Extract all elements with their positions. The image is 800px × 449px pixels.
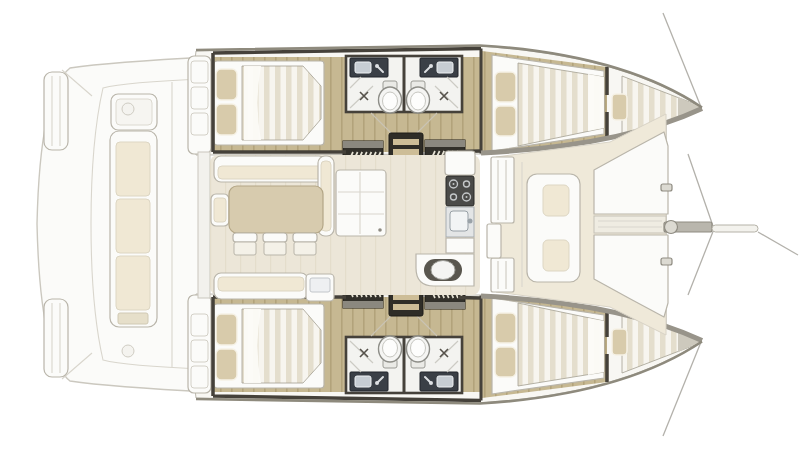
round-sink (431, 261, 455, 280)
anchor-line (758, 232, 798, 255)
stool-back (293, 233, 317, 242)
stove (446, 176, 474, 206)
foredeck-walkway (594, 216, 666, 233)
stool-back (263, 233, 287, 242)
sofa-cushion (218, 166, 322, 179)
bow-hardware (661, 184, 758, 265)
aft-bench-cushion (218, 277, 304, 291)
aft-cabin (214, 61, 324, 145)
beam-fitting (665, 221, 678, 234)
bench-cushion (116, 256, 150, 310)
stool (264, 242, 286, 255)
pillow (216, 69, 237, 100)
pillow (216, 104, 237, 135)
beam-cleat (661, 184, 672, 191)
floor-plan-canvas (0, 0, 800, 449)
pillow (495, 72, 516, 102)
transom-steps (44, 299, 68, 377)
sideboard (336, 170, 386, 236)
stool (294, 242, 316, 255)
bench-cushion (116, 199, 150, 253)
bowsprit (712, 225, 758, 232)
stool-back (233, 233, 257, 242)
forward-window-wall (491, 258, 514, 292)
end-cabinet-top (310, 278, 330, 292)
galley-counter (445, 151, 475, 175)
stools (233, 233, 317, 255)
deck-hatch (122, 345, 134, 357)
bench-tray (118, 313, 148, 324)
dining-table (229, 186, 323, 233)
stool (234, 242, 256, 255)
deck-hatch (122, 103, 134, 115)
forepeak-cushion (612, 94, 627, 120)
bench-cushion (116, 142, 150, 196)
galley-counter (446, 238, 474, 253)
burner-dot (466, 196, 468, 198)
bed-linen-fold (588, 74, 604, 131)
aft-cockpit (37, 57, 210, 392)
beam-cleat (661, 258, 672, 265)
burner-dot (453, 183, 455, 185)
saloon-aft-wall (198, 152, 210, 298)
forward-window-wall (491, 157, 514, 223)
sideboard-handle (378, 228, 382, 232)
seat-cushion (543, 240, 569, 271)
cockpit-console-top (116, 99, 152, 125)
side-seat-cushion (214, 198, 226, 222)
transom-steps (44, 72, 68, 150)
sliding-door (487, 224, 501, 258)
catamaran-floor-plan (0, 0, 800, 449)
galley-sink (450, 211, 468, 231)
sink-faucet-icon (468, 219, 473, 224)
pillow (495, 106, 516, 136)
seat-cushion (543, 185, 569, 216)
